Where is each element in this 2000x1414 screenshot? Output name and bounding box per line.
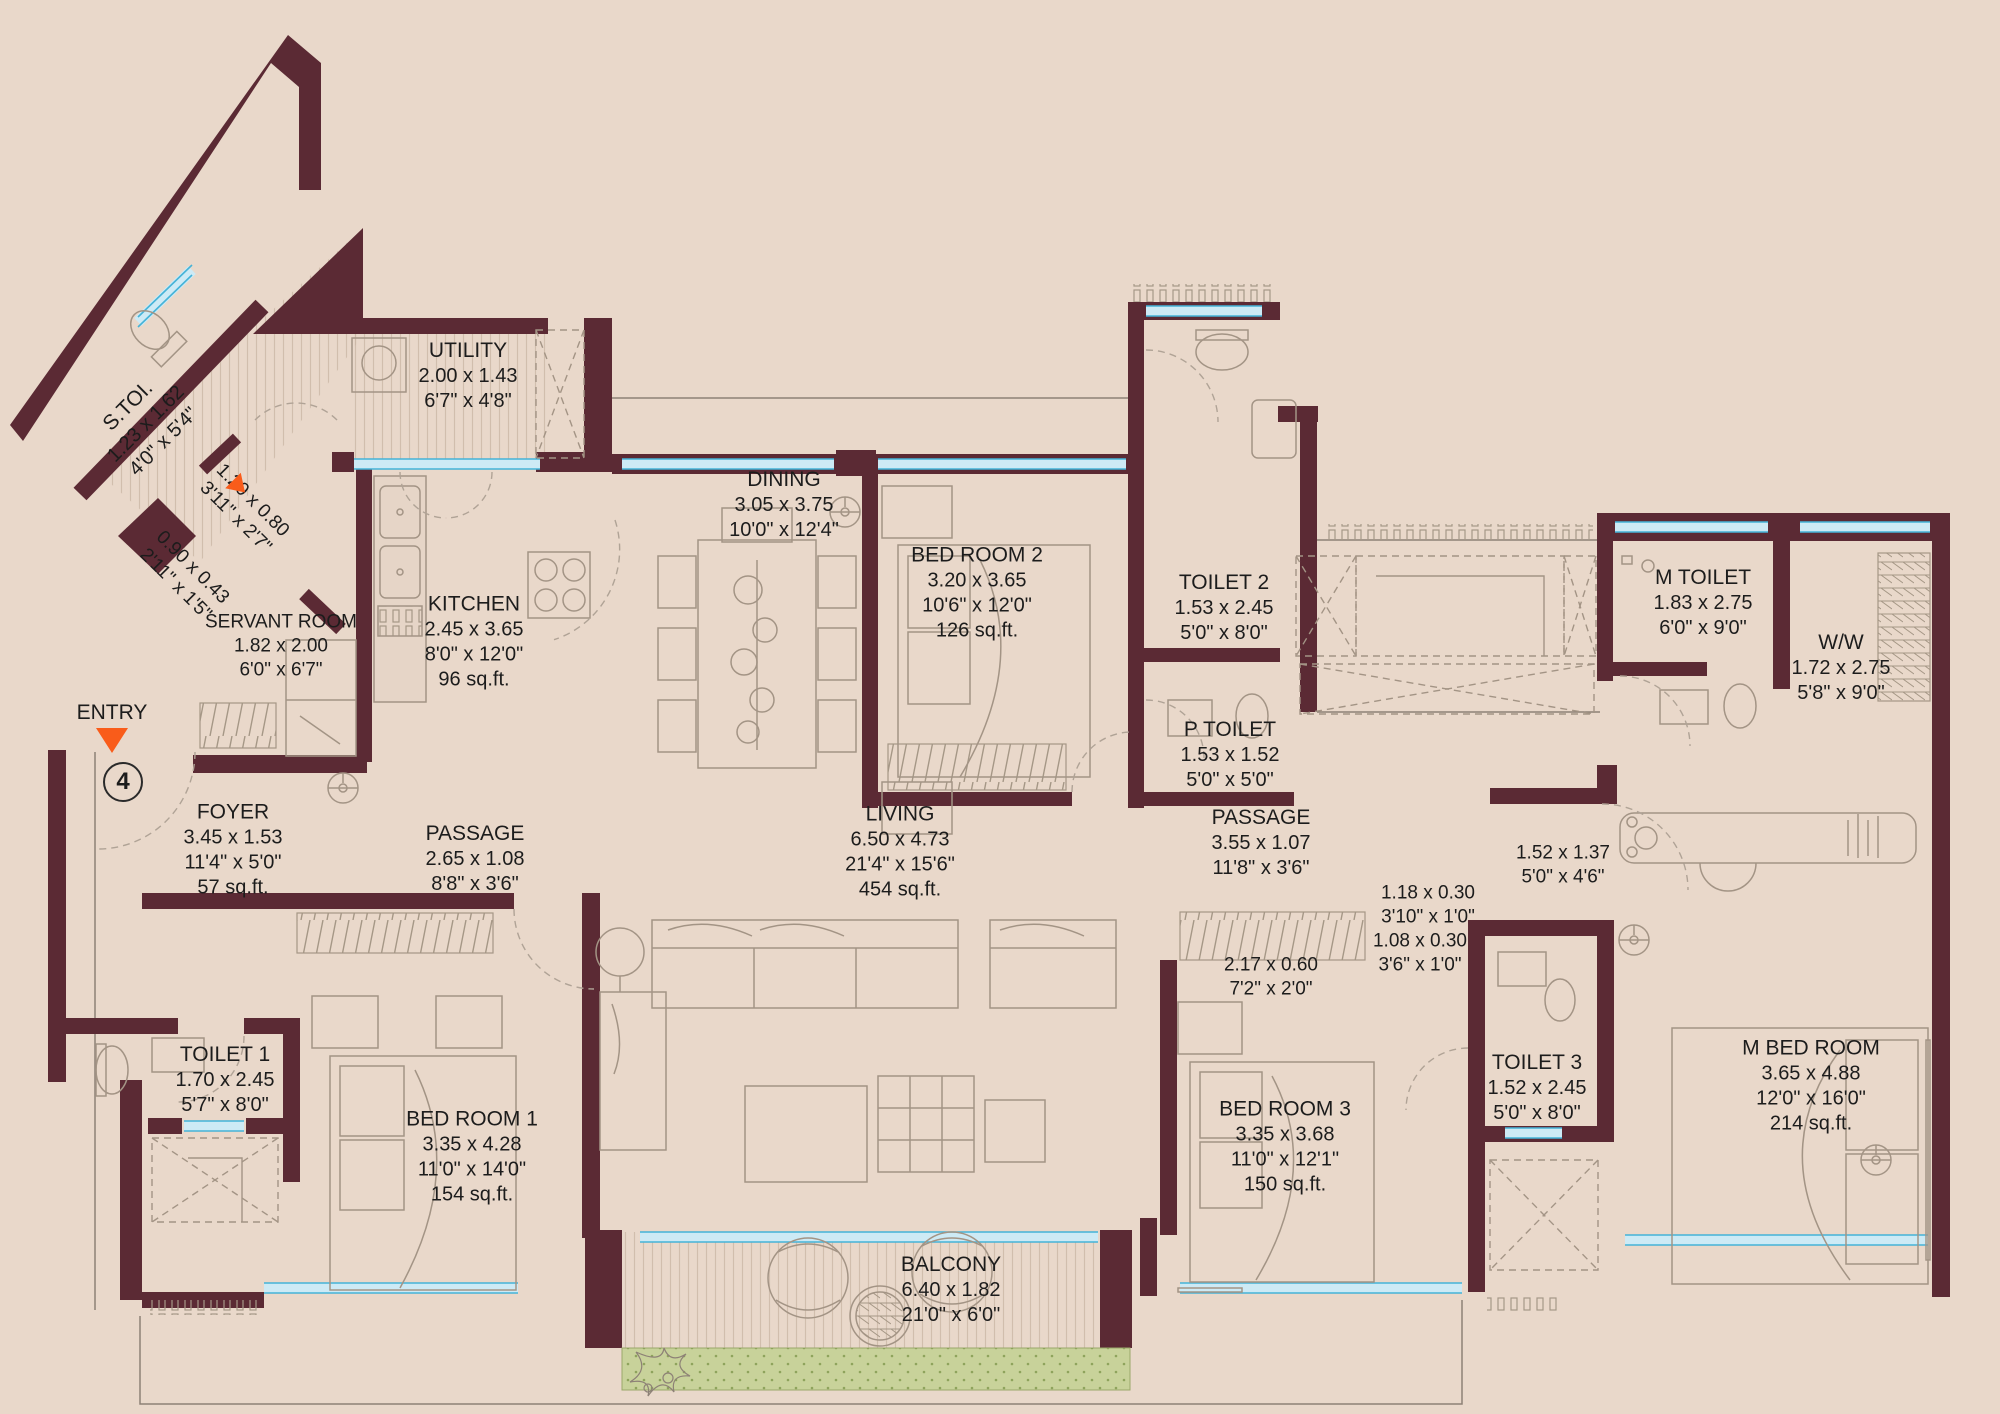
balcony-planter: [622, 1348, 1130, 1396]
dim-label-ledge-2: 1.08 x 0.30 3'6" x 1'0": [1373, 929, 1467, 977]
unit-number-badge: 4: [103, 762, 143, 802]
dining-set: [658, 508, 856, 768]
entry-arrow-icon: [96, 728, 128, 753]
room-label-foyer: FOYER 3.45 x 1.53 11'4" x 5'0" 57 sq.ft.: [184, 799, 283, 900]
room-label-bed-room-3: BED ROOM 3 3.35 x 3.68 11'0" x 12'1" 150…: [1219, 1096, 1351, 1197]
floor-plan-drawing: [0, 0, 2000, 1414]
room-label-toilet-2: TOILET 2 1.53 x 2.45 5'0" x 8'0": [1175, 570, 1274, 646]
room-label-p-toilet: P TOILET 1.53 x 1.52 5'0" x 5'0": [1181, 717, 1280, 793]
room-label-servant-room: SERVANT ROOM 1.82 x 2.00 6'0" x 6'7": [205, 610, 357, 681]
room-label-m-toilet: M TOILET 1.83 x 2.75 6'0" x 9'0": [1654, 565, 1753, 641]
entry-label: ENTRY: [77, 700, 148, 726]
living-furniture: [596, 920, 1116, 1182]
dim-label-passage: 1.52 x 1.37 5'0" x 4'6": [1516, 841, 1610, 889]
room-label-m-bed-room: M BED ROOM 3.65 x 4.88 12'0" x 16'0" 214…: [1742, 1035, 1880, 1136]
room-label-bed-room-2: BED ROOM 2 3.20 x 3.65 10'6" x 12'0" 126…: [911, 542, 1043, 643]
room-label-toilet-1: TOILET 1 1.70 x 2.45 5'7" x 8'0": [176, 1042, 275, 1118]
dim-label-ledge-1: 1.18 x 0.30 3'10" x 1'0": [1381, 881, 1475, 929]
room-label-living: LIVING 6.50 x 4.73 21'4" x 15'6" 454 sq.…: [845, 801, 955, 902]
room-label-kitchen: KITCHEN 2.45 x 3.65 8'0" x 12'0" 96 sq.f…: [425, 591, 524, 692]
room-label-utility: UTILITY 2.00 x 1.43 6'7" x 4'8": [419, 338, 518, 414]
room-label-passage-right: PASSAGE 3.55 x 1.07 11'8" x 3'6": [1212, 805, 1311, 881]
room-label-dining: DINING 3.05 x 3.75 10'0" x 12'4": [729, 467, 839, 543]
desk: [1620, 813, 1916, 891]
dim-label-wardrobe: 2.17 x 0.60 7'2" x 2'0": [1224, 953, 1318, 1001]
walls: [10, 35, 1950, 1348]
floor-plan: S.TOI. 1.23 x 1.62 4'0" x 5'4" 1.20 x 0.…: [0, 0, 2000, 1414]
room-label-ww: W/W 1.72 x 2.75 5'8" x 9'0": [1792, 630, 1891, 706]
room-label-balcony: BALCONY 6.40 x 1.82 21'0" x 6'0": [901, 1252, 1001, 1328]
room-label-passage-left: PASSAGE 2.65 x 1.08 8'8" x 3'6": [426, 821, 525, 897]
room-label-bed-room-1: BED ROOM 1 3.35 x 4.28 11'0" x 14'0" 154…: [406, 1106, 538, 1207]
room-label-toilet-3: TOILET 3 1.52 x 2.45 5'0" x 8'0": [1488, 1050, 1587, 1126]
